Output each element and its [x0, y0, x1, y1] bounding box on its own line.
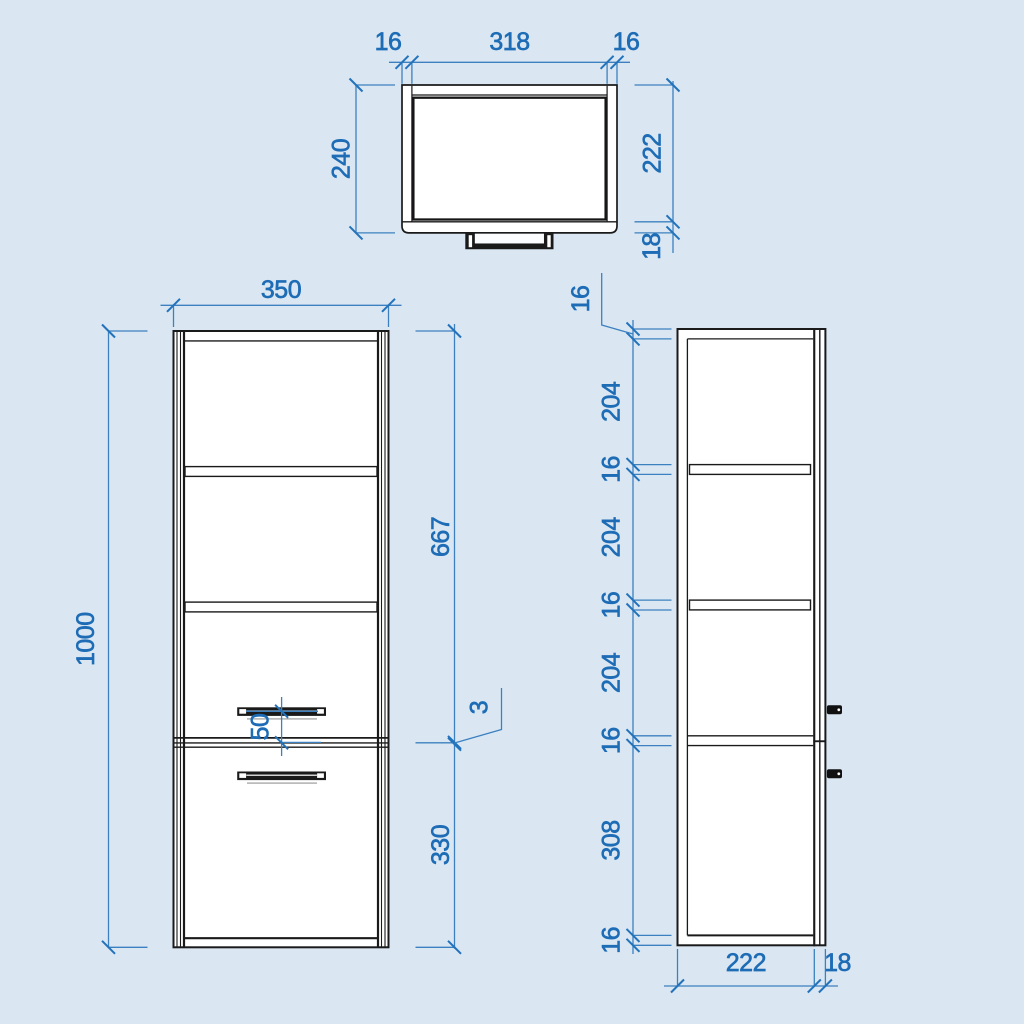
svg-text:16: 16	[598, 592, 626, 619]
svg-text:240: 240	[328, 139, 356, 179]
svg-text:318: 318	[489, 28, 529, 56]
svg-text:330: 330	[427, 825, 455, 865]
svg-text:16: 16	[613, 28, 640, 56]
svg-text:16: 16	[567, 286, 595, 313]
svg-text:16: 16	[598, 927, 626, 954]
svg-text:50: 50	[247, 714, 275, 741]
svg-text:204: 204	[598, 517, 626, 558]
svg-text:16: 16	[598, 456, 626, 483]
svg-text:308: 308	[598, 820, 626, 860]
svg-text:204: 204	[598, 652, 626, 693]
svg-text:667: 667	[427, 517, 455, 557]
svg-text:222: 222	[726, 949, 766, 977]
svg-text:222: 222	[639, 133, 667, 173]
svg-text:1000: 1000	[72, 612, 100, 666]
svg-text:18: 18	[638, 233, 666, 260]
svg-text:16: 16	[375, 28, 402, 56]
svg-text:18: 18	[824, 949, 851, 977]
svg-text:3: 3	[466, 701, 494, 714]
svg-text:204: 204	[598, 381, 626, 422]
svg-text:350: 350	[261, 276, 301, 304]
svg-text:16: 16	[598, 727, 626, 754]
